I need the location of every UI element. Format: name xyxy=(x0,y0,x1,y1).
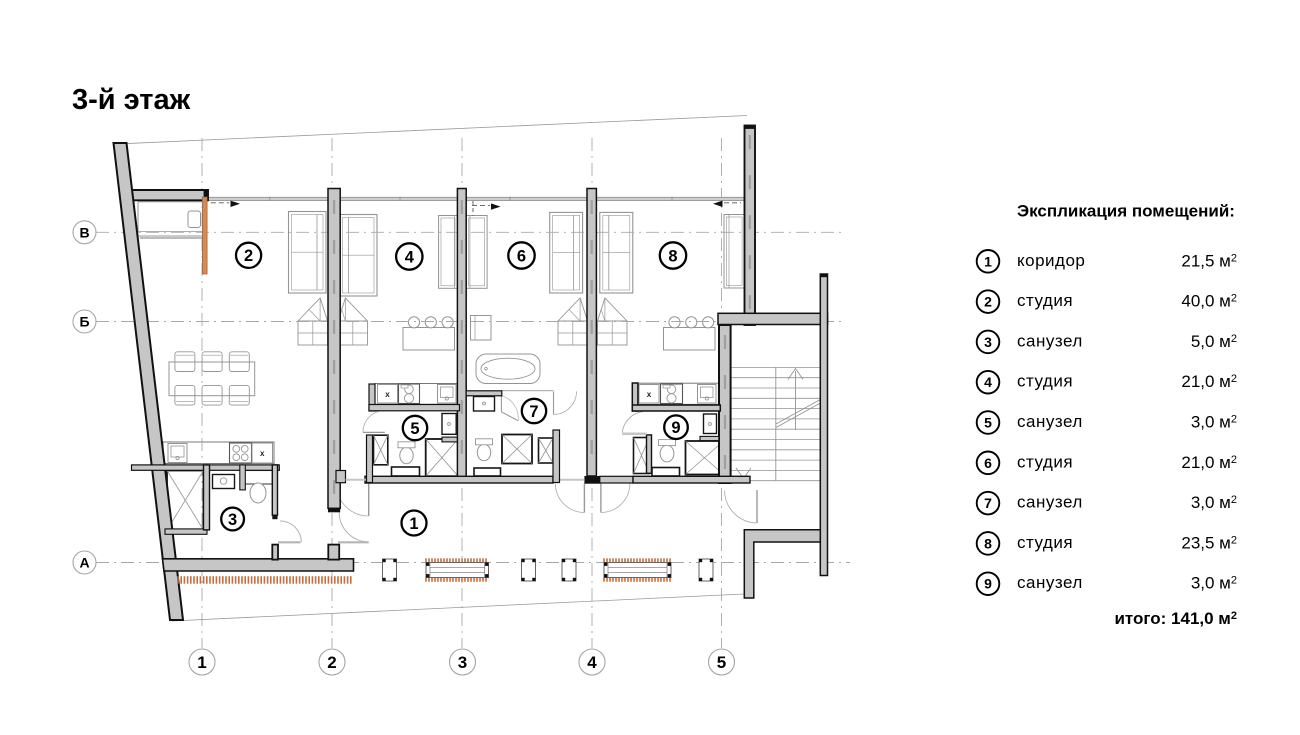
svg-text:5: 5 xyxy=(984,415,992,431)
svg-text:коридор: коридор xyxy=(1017,251,1085,270)
svg-text:1: 1 xyxy=(984,253,992,269)
svg-text:21,5 м2: 21,5 м2 xyxy=(1181,251,1237,270)
svg-text:Б: Б xyxy=(79,314,89,330)
svg-text:5,0 м2: 5,0 м2 xyxy=(1191,332,1237,351)
svg-text:1: 1 xyxy=(197,653,206,672)
svg-text:x: x xyxy=(260,449,265,458)
svg-text:7: 7 xyxy=(529,403,538,421)
svg-text:студия: студия xyxy=(1017,291,1073,310)
svg-text:2: 2 xyxy=(984,294,992,310)
svg-text:x: x xyxy=(647,390,652,399)
svg-text:3,0 м2: 3,0 м2 xyxy=(1191,413,1237,432)
svg-text:9: 9 xyxy=(984,576,992,592)
svg-text:2: 2 xyxy=(327,653,336,672)
svg-text:40,0 м2: 40,0 м2 xyxy=(1181,292,1237,311)
svg-text:итого: 141,0 м2: итого: 141,0 м2 xyxy=(1114,609,1237,628)
svg-text:санузел: санузел xyxy=(1017,412,1083,431)
svg-text:3-й этаж: 3-й этаж xyxy=(72,84,191,116)
svg-text:студия: студия xyxy=(1017,533,1073,552)
svg-text:4: 4 xyxy=(587,653,597,672)
svg-text:3: 3 xyxy=(458,653,467,672)
svg-text:А: А xyxy=(79,555,89,571)
svg-text:7: 7 xyxy=(984,495,992,511)
svg-text:санузел: санузел xyxy=(1017,493,1083,512)
svg-text:1: 1 xyxy=(409,515,418,533)
svg-text:3: 3 xyxy=(984,334,992,350)
svg-text:санузел: санузел xyxy=(1017,573,1083,592)
svg-text:2: 2 xyxy=(244,247,253,265)
svg-text:4: 4 xyxy=(984,374,992,390)
svg-text:3,0 м2: 3,0 м2 xyxy=(1191,493,1237,512)
svg-text:студия: студия xyxy=(1017,372,1073,391)
svg-text:23,5 м2: 23,5 м2 xyxy=(1181,533,1237,552)
svg-text:21,0 м2: 21,0 м2 xyxy=(1181,453,1237,472)
svg-text:4: 4 xyxy=(405,248,415,266)
svg-text:8: 8 xyxy=(668,247,677,265)
svg-text:9: 9 xyxy=(671,419,680,437)
svg-text:6: 6 xyxy=(984,455,992,471)
svg-text:x: x xyxy=(385,390,390,399)
svg-text:8: 8 xyxy=(984,535,992,551)
svg-text:6: 6 xyxy=(517,247,526,265)
svg-text:Экспликация помещений:: Экспликация помещений: xyxy=(1017,202,1235,221)
svg-text:21,0 м2: 21,0 м2 xyxy=(1181,372,1237,391)
svg-text:студия: студия xyxy=(1017,452,1073,471)
svg-text:5: 5 xyxy=(717,653,726,672)
svg-text:санузел: санузел xyxy=(1017,331,1083,350)
svg-text:3,0 м2: 3,0 м2 xyxy=(1191,574,1237,593)
svg-text:3: 3 xyxy=(228,511,237,529)
svg-text:В: В xyxy=(79,224,89,240)
svg-text:5: 5 xyxy=(410,420,419,438)
